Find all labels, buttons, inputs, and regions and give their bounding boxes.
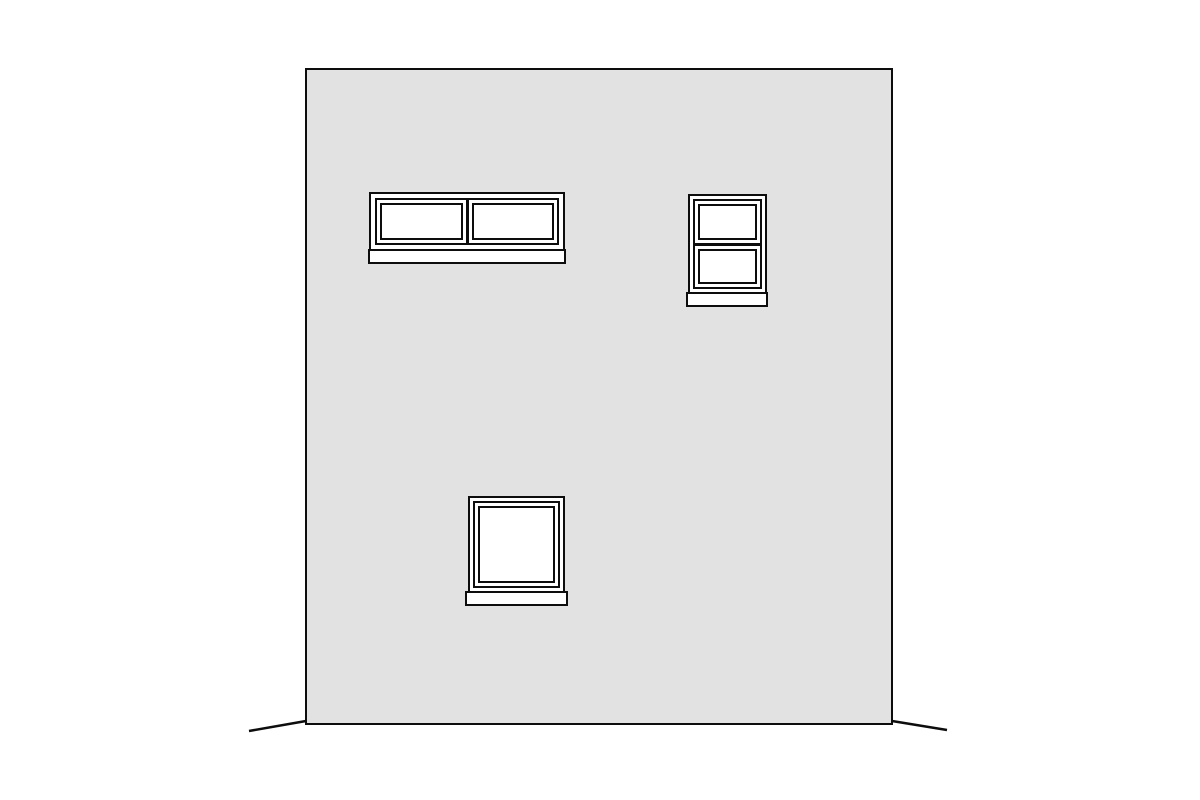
ground-line-right <box>892 721 947 730</box>
ground-line-left <box>249 721 306 731</box>
window-fixed-square-inner-frame <box>473 501 560 588</box>
window-horizontal-slider-inner-frame <box>375 198 559 245</box>
window-fixed-square-frame <box>468 496 565 593</box>
window-horizontal-slider-sill <box>368 249 566 264</box>
window-sash-single <box>475 503 558 586</box>
window-pane-lower <box>698 249 757 285</box>
window-pane-left <box>380 203 463 240</box>
window-pane-single <box>478 506 555 583</box>
elevation-drawing-canvas <box>0 0 1200 800</box>
window-sash-upper <box>695 201 760 243</box>
building-facade-wall <box>305 68 893 725</box>
window-pane-right <box>472 203 555 240</box>
window-double-hung-inner-frame <box>693 199 762 289</box>
window-sash-lower <box>695 246 760 288</box>
window-double-hung-sill <box>686 292 768 307</box>
window-double-hung-frame <box>688 194 767 294</box>
window-sash-left <box>377 200 466 243</box>
window-fixed-square-sill <box>465 591 568 606</box>
window-horizontal-slider-frame <box>369 192 565 251</box>
window-sash-right <box>469 200 558 243</box>
window-pane-upper <box>698 204 757 240</box>
